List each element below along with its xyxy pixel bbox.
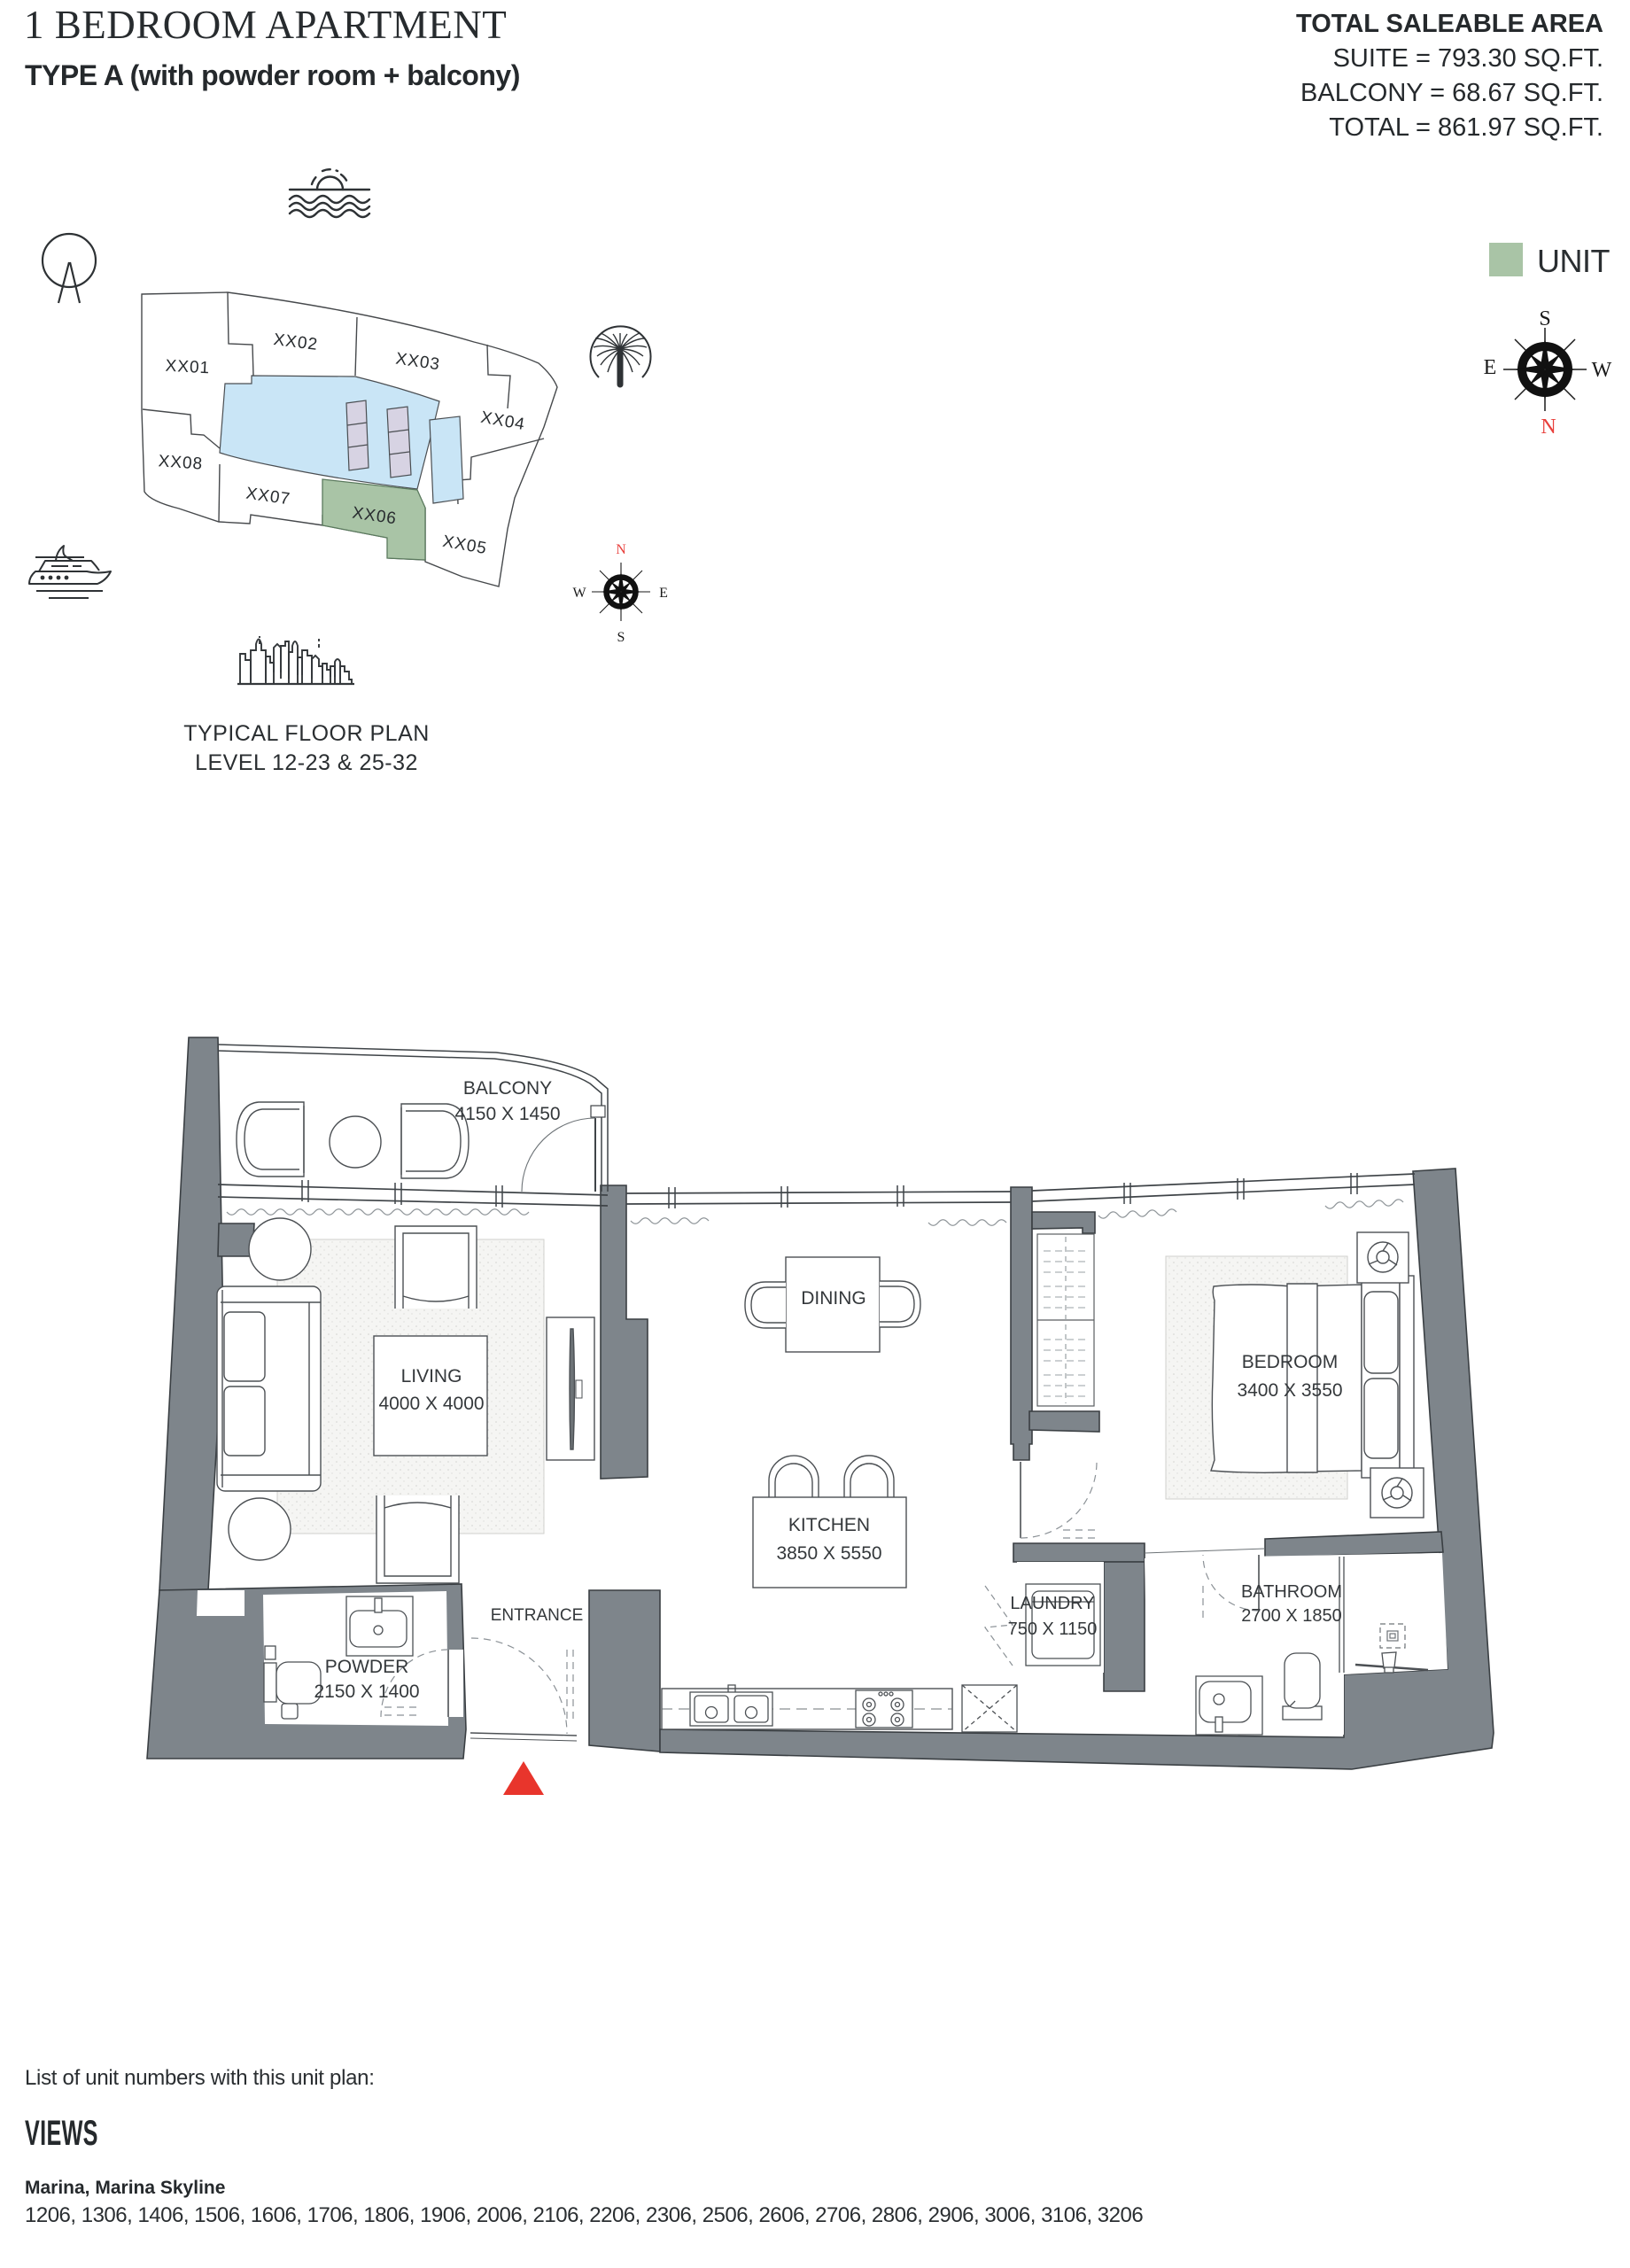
svg-text:ENTRANCE: ENTRANCE [491, 1606, 584, 1625]
svg-text:2700 X 1850: 2700 X 1850 [1241, 1606, 1341, 1626]
svg-text:N: N [616, 542, 626, 557]
svg-text:XX04: XX04 [479, 408, 526, 434]
svg-text:W: W [572, 586, 586, 601]
svg-text:LIVING: LIVING [401, 1366, 462, 1386]
svg-text:4150 X 1450: 4150 X 1450 [454, 1104, 560, 1124]
svg-text:4000 X 4000: 4000 X 4000 [378, 1394, 484, 1414]
svg-text:XX05: XX05 [441, 532, 488, 558]
svg-text:XX08: XX08 [158, 452, 204, 473]
svg-text:XX02: XX02 [272, 330, 319, 354]
svg-text:750 X 1150: 750 X 1150 [1008, 1619, 1098, 1639]
svg-text:N: N [1541, 416, 1556, 439]
svg-text:KITCHEN: KITCHEN [788, 1515, 870, 1535]
svg-text:XX07: XX07 [244, 485, 291, 509]
svg-text:S: S [617, 630, 625, 645]
svg-text:3400 X 3550: 3400 X 3550 [1237, 1380, 1342, 1401]
svg-text:BEDROOM: BEDROOM [1242, 1352, 1339, 1372]
svg-text:W: W [1592, 359, 1612, 382]
svg-text:POWDER: POWDER [325, 1657, 409, 1677]
svg-text:E: E [1484, 356, 1497, 379]
svg-text:XX01: XX01 [165, 357, 211, 378]
svg-text:LAUNDRY: LAUNDRY [1010, 1594, 1094, 1613]
svg-text:BATHROOM: BATHROOM [1241, 1582, 1342, 1602]
svg-text:3850 X 5550: 3850 X 5550 [776, 1543, 881, 1564]
svg-text:BALCONY: BALCONY [463, 1078, 552, 1099]
svg-text:S: S [1539, 307, 1550, 330]
svg-text:2150 X 1400: 2150 X 1400 [314, 1682, 419, 1702]
svg-text:DINING: DINING [801, 1288, 866, 1309]
svg-text:XX03: XX03 [394, 350, 441, 375]
svg-text:E: E [659, 586, 668, 601]
